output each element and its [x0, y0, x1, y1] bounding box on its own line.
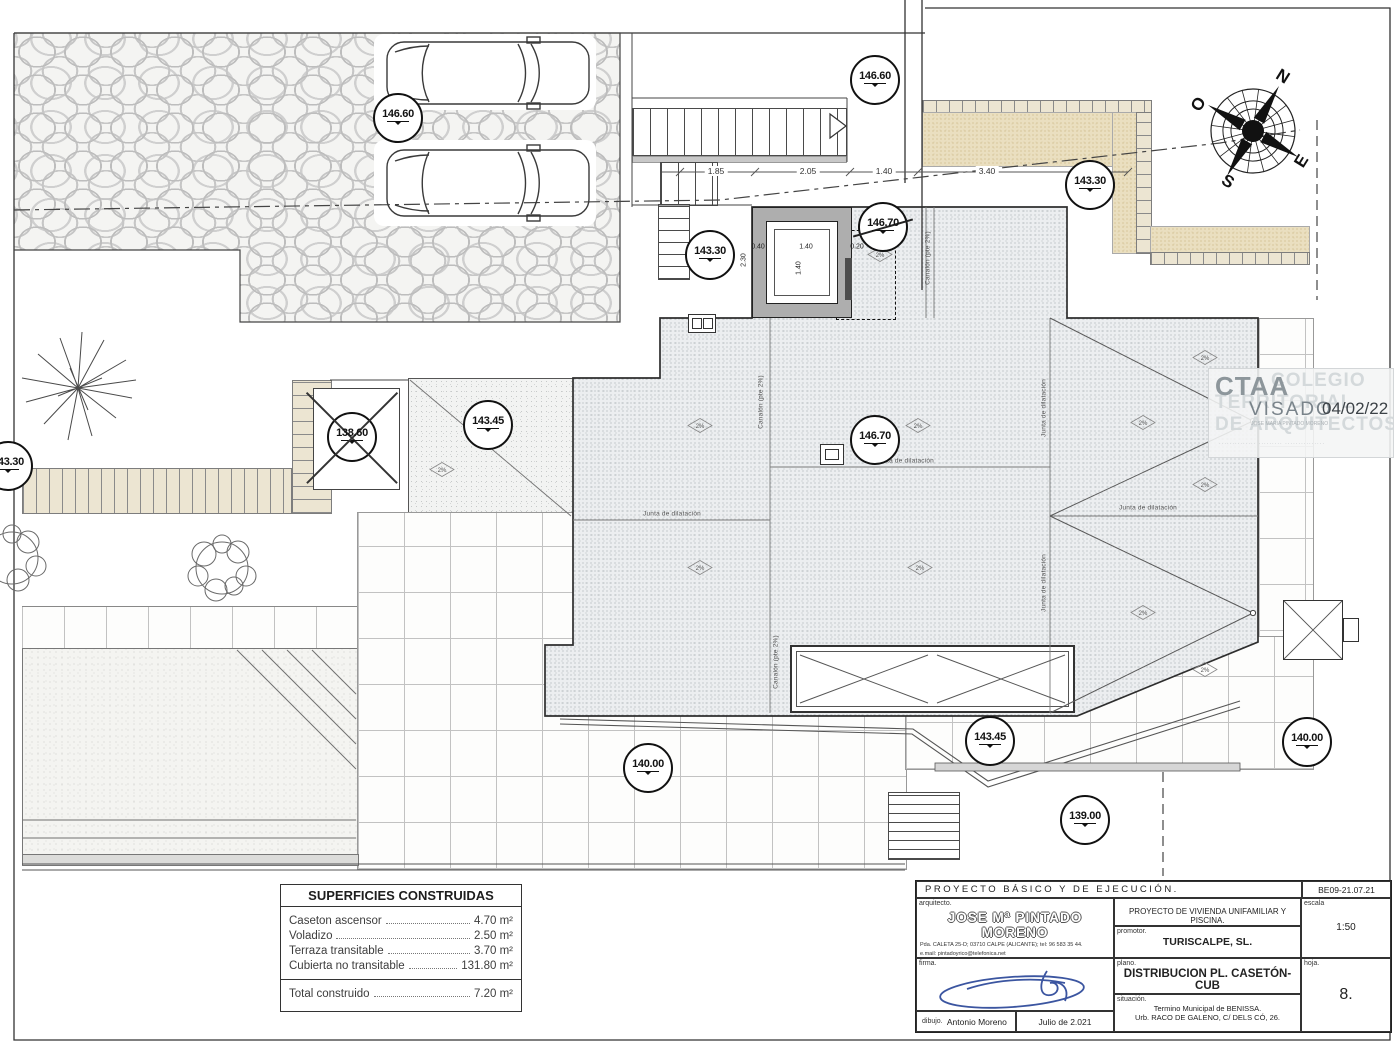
- shaft-dim: 2.30: [741, 253, 748, 267]
- sand-path-edging-lower: [1150, 252, 1310, 265]
- junta-label: Junta de dilatación: [1119, 505, 1177, 512]
- title-block-project-title: PROYECTO DE VIVIENDA UNIFAMILIAR Y PISCI…: [1114, 898, 1301, 926]
- arquitecto-label: arquitecto.: [917, 899, 1113, 908]
- slope-marker: 2%: [1192, 477, 1218, 498]
- small-structure: [1283, 600, 1343, 660]
- shrub-icon: [188, 535, 256, 601]
- level-badge: 146.60: [373, 93, 423, 143]
- compass-north-label: N: [1273, 65, 1293, 88]
- shaft-dim: 0.20: [850, 244, 864, 251]
- dim-label: 1.85: [705, 166, 728, 176]
- canalon-label: Canalón (pte 2%): [773, 635, 780, 689]
- dim-label: 2.05: [797, 166, 820, 176]
- areas-row: Voladizo2.50 m²: [289, 930, 513, 942]
- title-block-code: BE09-21.07.21: [1302, 881, 1391, 898]
- staircase-lower-right: [888, 792, 960, 860]
- elevator-door: [845, 258, 852, 300]
- junta-label: Junta de dilatación: [643, 511, 701, 518]
- svg-text:2%: 2%: [1201, 668, 1210, 674]
- symbol-box: [688, 314, 716, 333]
- stamp-date: 04/02/22: [1322, 399, 1388, 419]
- svg-text:2%: 2%: [696, 424, 705, 430]
- parking-pad-2: [374, 140, 596, 226]
- canalon-label: Canalón (pte 2%): [925, 231, 932, 285]
- stamp-smallprint: ·············· ········· ···············: [1219, 441, 1325, 447]
- shrub-icon: [0, 525, 46, 591]
- sand-path-lower: [1150, 226, 1310, 254]
- compass-east-label: E: [1290, 151, 1312, 171]
- sand-path-top: [922, 112, 1114, 167]
- areas-row: Terraza transitable3.70 m²: [289, 945, 513, 957]
- slope-marker: 2%: [907, 560, 933, 581]
- level-badge: 143.45: [463, 400, 513, 450]
- shaft-dim: 1.40: [796, 261, 803, 275]
- paved-walkway-horizontal: [22, 468, 292, 514]
- skylight-inner-frame: [796, 651, 1069, 707]
- svg-text:2%: 2%: [1139, 421, 1148, 427]
- visado-stamp: COLEGIO TERRITORIAL DE ARQUITECTOS CTAA …: [1208, 368, 1394, 458]
- level-badge: 146.70: [850, 415, 900, 465]
- slope-marker: 2%: [905, 418, 931, 439]
- title-block-date: Julio de 2.021: [1016, 1011, 1114, 1032]
- stamp-smallprint: JOSE MARIA PINTADO MORENO: [1251, 421, 1328, 427]
- pool-edge-band: [22, 854, 359, 866]
- symbol-box: [820, 444, 844, 465]
- junta-label: Junta de dilatación: [1041, 554, 1048, 612]
- stamp-acronym: CTAA: [1215, 371, 1289, 402]
- sand-path-vertical: [1112, 112, 1138, 254]
- pool-terrace: [22, 648, 359, 856]
- slope-marker: 2%: [687, 418, 713, 439]
- dim-label: 1.40: [873, 166, 896, 176]
- svg-text:2%: 2%: [696, 566, 705, 572]
- areas-table-title: SUPERFICIES CONSTRUIDAS: [281, 885, 521, 907]
- title-block-plan-name: plano. DISTRIBUCION PL. CASETÓN-CUB: [1114, 958, 1301, 994]
- title-block-project-type: PROYECTO BÁSICO Y DE EJECUCIÓN.: [916, 881, 1302, 898]
- floor-plan-sheet: N O E S: [0, 0, 1400, 1050]
- svg-text:2%: 2%: [876, 253, 885, 259]
- stamp-visado-label: VISADO: [1249, 399, 1333, 421]
- areas-row: Cubierta no transitable131.80 m²: [289, 960, 513, 972]
- level-badge: 140.00: [623, 743, 673, 793]
- title-block-drawn-by: dibujo. Antonio Moreno: [916, 1011, 1016, 1032]
- slope-marker: 2%: [429, 462, 455, 483]
- slope-marker: 2%: [1192, 662, 1218, 683]
- small-structure-annex: [1343, 618, 1359, 642]
- compass-west-label: O: [1187, 93, 1210, 114]
- level-badge: 143.30: [685, 230, 735, 280]
- areas-total-row: Total construido7.20 m²: [289, 988, 513, 1000]
- svg-text:2%: 2%: [914, 424, 923, 430]
- junta-label: Junta de dilatación: [1041, 379, 1048, 437]
- areas-row: Caseton ascensor4.70 m²: [289, 915, 513, 927]
- level-badge: 140.00: [1282, 717, 1332, 767]
- architect-name: JOSE Mª PINTADO MORENO: [917, 910, 1113, 940]
- level-badge: 143.45: [965, 716, 1015, 766]
- areas-table: SUPERFICIES CONSTRUIDAS Caseton ascensor…: [280, 884, 522, 1012]
- title-block-architect-cell: arquitecto. JOSE Mª PINTADO MORENO Pda. …: [916, 898, 1114, 958]
- svg-text:2%: 2%: [1201, 483, 1210, 489]
- svg-text:2%: 2%: [916, 566, 925, 572]
- title-block-promoter: promotor. TURISCALPE, SL.: [1114, 926, 1301, 958]
- staircase-main: [632, 108, 847, 156]
- dim-label: 3.40: [976, 166, 999, 176]
- architect-address: Pda. CALETA 25-D; 03710 CALPE (ALICANTE)…: [917, 940, 1113, 949]
- slope-marker: 2%: [1130, 605, 1156, 626]
- staircase-side-flight: [658, 204, 690, 280]
- title-block-sheet-number: hoja. 8.: [1301, 958, 1391, 1032]
- slope-marker: 2%: [1130, 415, 1156, 436]
- title-block-scale: escala 1:50: [1301, 898, 1391, 958]
- signature: [927, 967, 1107, 1009]
- slope-marker: 2%: [687, 560, 713, 581]
- level-badge: 143.30: [1065, 160, 1115, 210]
- compass-south-label: S: [1218, 170, 1238, 192]
- level-badge: 146.60: [850, 55, 900, 105]
- shaft-dim: 0.40: [751, 244, 765, 251]
- svg-text:2%: 2%: [1139, 611, 1148, 617]
- tile-row: [22, 606, 357, 650]
- title-block-location: situación. Termino Municipal de BENISSA.…: [1114, 994, 1301, 1032]
- svg-text:2%: 2%: [438, 468, 447, 474]
- level-badge-struck: 146.70: [858, 202, 908, 252]
- level-badge: 139.00: [1060, 795, 1110, 845]
- title-block: PROYECTO BÁSICO Y DE EJECUCIÓN. BE09-21.…: [915, 880, 1392, 1033]
- architect-email: e.mail: pintadoyrico@telefonica.net: [917, 949, 1113, 958]
- title-block-signature-cell: firma.: [916, 958, 1114, 1011]
- shaft-dim: 1.40: [799, 244, 813, 251]
- agave-plant-icon: [22, 332, 136, 440]
- level-badge-crossed: 138.60: [327, 412, 377, 462]
- canalon-label: Canalón (pte 2%): [758, 375, 765, 429]
- svg-text:2%: 2%: [1201, 356, 1210, 362]
